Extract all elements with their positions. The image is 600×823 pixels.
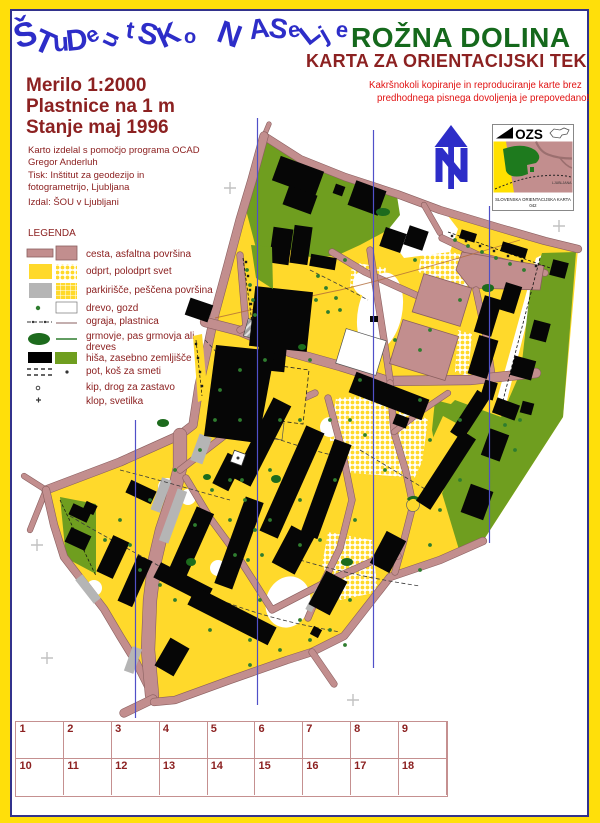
- svg-text:LJUBLJANA: LJUBLJANA: [552, 181, 572, 185]
- svg-text:042: 042: [529, 203, 537, 208]
- svg-text:SLOVENSKA ORIENTACIJSKA KARTA: SLOVENSKA ORIENTACIJSKA KARTA: [495, 197, 571, 202]
- svg-text:OZS: OZS: [515, 127, 543, 142]
